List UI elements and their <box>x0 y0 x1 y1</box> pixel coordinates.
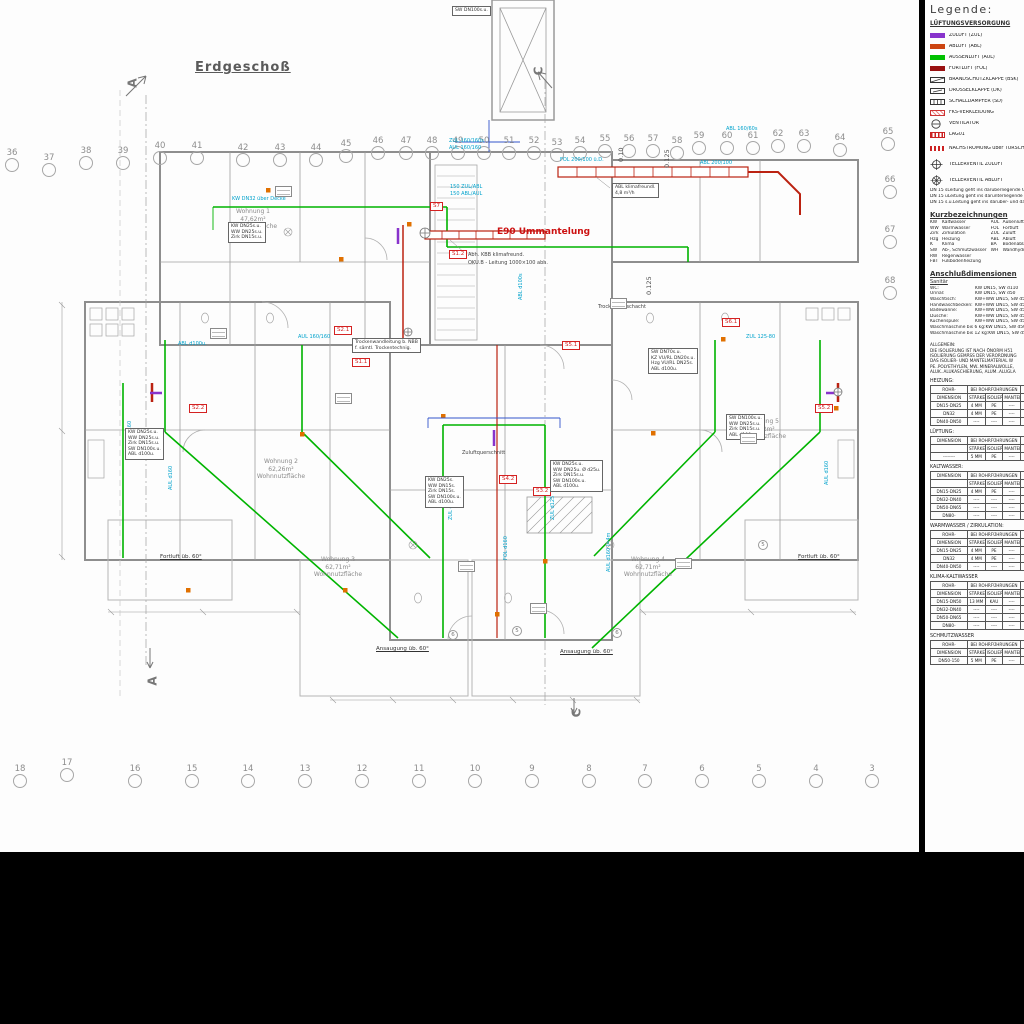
legend-item: DROSSELKLAPPE (DK) <box>930 85 1024 96</box>
table-cell: DN32 <box>931 409 968 417</box>
door-number: 5 <box>512 626 522 636</box>
plan-label: ABL 160/60s <box>726 126 757 132</box>
pipe-spec-box: Trockenwandleitung b. NBBf. sämtl. Trock… <box>352 338 421 353</box>
table-cut-col <box>1021 648 1024 656</box>
grid-number: 60 <box>722 131 733 141</box>
abbrev-code: WH <box>991 248 1003 254</box>
fks-icon <box>930 110 945 116</box>
anschluss-rows: WC:KW DN15, SW d110Urinal:KW DN15, SW d5… <box>930 286 1024 336</box>
table-title: WARMWASSER / ZIRKULATION: <box>930 524 1024 529</box>
shaft-tag: S7 <box>430 202 443 211</box>
table-row: DN50-DN65------------ <box>931 503 1024 511</box>
table-dim-header2 <box>931 479 968 487</box>
grid-number: 56 <box>624 134 635 144</box>
plan-label: 150 ZUL/ABL <box>450 184 482 190</box>
grid-bubble: 11 <box>412 774 426 788</box>
lag-icon <box>930 132 945 138</box>
table-cell: DN15-DN25 <box>931 546 968 554</box>
table-cell: ---- <box>1003 417 1021 425</box>
grid-number: 59 <box>694 131 705 141</box>
table-group-header: BEI ROHRFÜHRUNGEN <box>968 640 1021 648</box>
table-cell: 5 MM <box>968 656 986 664</box>
table-cell: DN32-DN40 <box>931 495 968 503</box>
table-group-header: BEI ROHRFÜHRUNGEN <box>968 385 1021 393</box>
table-sub-header: ISOLIER. <box>985 393 1003 401</box>
table-cut-col <box>1021 385 1024 393</box>
plan-label: Zuluftquerschnitt <box>462 450 505 456</box>
table-cell: ---- <box>1003 511 1021 519</box>
table-sub-header: STÄRKE <box>968 393 986 401</box>
table-cell: PE <box>985 401 1003 409</box>
table-dim-header: DIMENSION <box>931 471 968 479</box>
insulation-table: ROHR-BEI ROHRFÜHRUNGENDIMENSIONSTÄRKEISO… <box>930 581 1024 630</box>
table-sub-header: MANTEL <box>1003 393 1021 401</box>
grid-number: 38 <box>81 146 92 156</box>
table-cell: ---- <box>1003 605 1021 613</box>
legend-item: AUSSENLUFT (AUL) <box>930 52 1024 63</box>
table-sub-header: STÄRKE <box>968 479 986 487</box>
grid-bubble: 4 <box>809 774 823 788</box>
table-cell: ---- <box>1003 621 1021 629</box>
table-row: DN15-DN254 MMPE---- <box>931 401 1024 409</box>
anschluss-dims: KW DN15, SW d50 <box>988 331 1024 337</box>
table-sub-header: STÄRKE <box>968 589 986 597</box>
grid-number: 5 <box>756 764 761 774</box>
table-cell: ---- <box>968 605 986 613</box>
legend-item: LAG01 <box>930 129 1024 140</box>
table-cell: 4 MM <box>968 409 986 417</box>
table-sub-header: MANTEL <box>1003 648 1021 656</box>
table-cut-col <box>1021 530 1024 538</box>
table-cell: ---- <box>968 495 986 503</box>
table-cell: ---- <box>985 621 1003 629</box>
table-cut-cell <box>1021 452 1024 460</box>
table-cell: DN15-DN25 <box>931 401 968 409</box>
grid-bubble: 55 <box>598 144 612 158</box>
table-cell: DN15-DN25 <box>931 487 968 495</box>
table-cell: DN15-DN50 <box>931 597 968 605</box>
grid-number: 43 <box>275 143 286 153</box>
grid-number: 13 <box>300 764 311 774</box>
table-cell: DN80- <box>931 621 968 629</box>
table-row: DN324 MMPE---- <box>931 554 1024 562</box>
grid-number: 12 <box>357 764 368 774</box>
grid-bubble: 41 <box>190 151 204 165</box>
table-title: HEIZUNG: <box>930 379 1024 384</box>
table-dim-header2: DIMENSION <box>931 589 968 597</box>
grid-bubble: 66 <box>883 185 897 199</box>
table-cut-cell <box>1021 597 1024 605</box>
plan-label: ABL 200/100 <box>700 160 732 166</box>
table-cell: ---- <box>1003 409 1021 417</box>
table-title: KALTWASSER: <box>930 465 1024 470</box>
table-cut-cell <box>1021 503 1024 511</box>
dn-note-text: Leitung geht ins darüber- und darunterli… <box>953 200 1024 206</box>
plan-label: ZUL d125 <box>550 496 556 520</box>
table-row: DN40-DN50------------ <box>931 562 1024 570</box>
abbrev-code: FBT <box>930 259 942 265</box>
grid-number: 61 <box>748 131 759 141</box>
grid-bubble: 42 <box>236 153 250 167</box>
grid-number: 6 <box>699 764 704 774</box>
table-row: DN80------------- <box>931 621 1024 629</box>
legend-item-label: ABLUFT (ABL) <box>949 44 982 49</box>
table-cell: DN40-DN50 <box>931 562 968 570</box>
table-cut-cell <box>1021 605 1024 613</box>
grid-bubble: 43 <box>273 153 287 167</box>
plan-label: FOL 200/100 ü.D. <box>560 157 604 163</box>
table-cell: ---- <box>968 511 986 519</box>
table-dim-header: DIMENSION <box>931 436 968 444</box>
table-row: DN15-DN254 MMPE---- <box>931 546 1024 554</box>
abbrev-title: Kurzbezeichnungen <box>930 211 1024 219</box>
duct-color-swatch <box>930 66 945 71</box>
table-cell: DN50-DN65 <box>931 503 968 511</box>
table-cell: ---- <box>1003 487 1021 495</box>
table-cell: KAU <box>985 597 1003 605</box>
table-group-header: BEI ROHRFÜHRUNGEN <box>968 436 1021 444</box>
shaft-tag: S2.1 <box>334 326 352 335</box>
room-tag <box>610 298 627 309</box>
table-group-header: BEI ROHRFÜHRUNGEN <box>968 530 1021 538</box>
table-cell: 4 MM <box>968 554 986 562</box>
table-title: KLIMA-KALTWASSER <box>930 575 1024 580</box>
legend-item-label: TELLERVENTIL ABLUFT <box>949 178 1003 183</box>
grid-number: 55 <box>600 134 611 144</box>
grid-bubble: 3 <box>865 774 879 788</box>
pipe-spec-box: ABL klimafreundl.4,8 m³/h <box>612 183 659 198</box>
room-tag <box>210 328 227 339</box>
legend-item-label: BRANDSCHUTZKLAPPE (BSK) <box>949 77 1018 82</box>
legend-item-label: DROSSELKLAPPE (DK) <box>949 88 1002 93</box>
table-cut-cell <box>1021 613 1024 621</box>
insulation-table: ROHR-BEI ROHRFÜHRUNGENDIMENSIONSTÄRKEISO… <box>930 530 1024 571</box>
allgemein-notes: ALLGEMEIN:DIE ISOLIERUNG IST NACH ÖNORM … <box>930 342 1024 374</box>
room-tag <box>458 561 475 572</box>
table-row: --------5 MMPE---- <box>931 452 1024 460</box>
plan-label: 0.125 <box>646 276 652 295</box>
shaft-tag: S3.2 <box>533 487 551 496</box>
insulation-table: DIMENSIONBEI ROHRFÜHRUNGENSTÄRKEISOLIER.… <box>930 436 1024 461</box>
grid-number: 65 <box>883 127 894 137</box>
table-row: DN50-DN65------------ <box>931 613 1024 621</box>
table-sub-header: MANTEL <box>1003 538 1021 546</box>
table-cut-cell <box>1021 562 1024 570</box>
shaft-tag: S5.1 <box>562 341 580 350</box>
table-cell: ---- <box>985 495 1003 503</box>
plan-label: ABL d100s <box>518 273 524 300</box>
grid-bubble: 10 <box>468 774 482 788</box>
grid-number: 9 <box>529 764 534 774</box>
table-cell: ---- <box>968 621 986 629</box>
legend-vent-title: LÜFTUNGSVERSORGUNG <box>930 21 1024 27</box>
plan-label: E90 Ummantelung <box>497 229 590 235</box>
table-cell: ---- <box>1003 597 1021 605</box>
grid-number: 11 <box>414 764 425 774</box>
grid-bubble: 44 <box>309 153 323 167</box>
legend-valve-items: NACHSTRÖMUNG über TÜRSCHLITZTELLERVENTIL… <box>930 140 1024 188</box>
abbrev-text: Wandhydrant <box>1003 248 1024 254</box>
fan-icon <box>930 119 945 129</box>
legend-item-label: VENTILATOR <box>949 121 979 126</box>
table-cut-col <box>1021 471 1024 479</box>
insulation-table: ROHR-BEI ROHRFÜHRUNGENDIMENSIONSTÄRKEISO… <box>930 640 1024 665</box>
plan-label: Fortluft üb. 60° <box>160 554 202 560</box>
legend-item-label: TELLERVENTIL ZULUFT <box>949 162 1003 167</box>
grid-number: 52 <box>529 136 540 146</box>
grid-bubble: 47 <box>399 146 413 160</box>
grid-bubble: 59 <box>692 141 706 155</box>
table-sub-header: STÄRKE <box>968 444 986 452</box>
door-number: 6 <box>448 630 458 640</box>
table-cell: PE <box>985 656 1003 664</box>
grid-number: 42 <box>238 143 249 153</box>
plan-label: 150 ABL/AUL <box>450 191 482 197</box>
duct-color-swatch <box>930 33 945 38</box>
grid-number: 14 <box>243 764 254 774</box>
table-row: DN32-DN40------------ <box>931 495 1024 503</box>
table-dim-header2 <box>931 444 968 452</box>
legend-item-label: LAG01 <box>949 132 965 137</box>
anschluss-sub: Sanitär <box>930 279 1024 285</box>
allgemein-line: ALUK..ALUKASCHIERUNG, ALUM..ALUGLA <box>930 369 1024 374</box>
table-cut-cell <box>1021 554 1024 562</box>
plan-label: 0.10 <box>618 148 624 162</box>
floor-plan-sheet: Erdgeschoß 36373839404142434445464748495… <box>0 0 919 852</box>
grid-number: 45 <box>341 139 352 149</box>
table-dim-header: ROHR- <box>931 640 968 648</box>
table-group-header: BEI ROHRFÜHRUNGEN <box>968 471 1021 479</box>
table-sub-header: ISOLIER. <box>985 589 1003 597</box>
grid-number: 18 <box>15 764 26 774</box>
grid-number: 66 <box>885 175 896 185</box>
legend-panel: Legende: LÜFTUNGSVERSORGUNG ZULUFT (ZUL)… <box>925 0 1024 852</box>
grid-bubble: 40 <box>153 151 167 165</box>
grid-number: 3 <box>869 764 874 774</box>
table-cell: ---- <box>985 562 1003 570</box>
grid-bubble: 6 <box>695 774 709 788</box>
pipe-spec-box: SW DN100s.u. <box>452 6 491 16</box>
grid-number: 37 <box>44 153 55 163</box>
table-cell: ---- <box>968 417 986 425</box>
table-row: DN50-1505 MMPE---- <box>931 656 1024 664</box>
table-cut-col <box>1021 538 1024 546</box>
grid-bubble: 51 <box>502 146 516 160</box>
legend-item-label: SCHALLDÄMPFER (SD) <box>949 99 1003 104</box>
pipe-spec-box: KW DN25s.u.WW DN25s.u.Zirk DN15s.u. <box>228 222 266 243</box>
shaft-tag: S5.2 <box>815 404 833 413</box>
room-tag <box>675 558 692 569</box>
grid-bubble: 7 <box>638 774 652 788</box>
table-row: DN15-DN5013 MMKAU---- <box>931 597 1024 605</box>
grid-bubble: 39 <box>116 156 130 170</box>
pipe-spec-box: SW DN70s.u.KZ VU/RL DN20s.u.Hzg VU/RL DN… <box>648 348 698 374</box>
grid-bubble: 46 <box>371 146 385 160</box>
legend-item: ZULUFT (ZUL) <box>930 30 1024 41</box>
grid-number: 8 <box>586 764 591 774</box>
legend-item-label: AUSSENLUFT (AUL) <box>949 55 995 60</box>
table-cut-col <box>1021 589 1024 597</box>
grid-bubble: 36 <box>5 158 19 172</box>
grid-number: 47 <box>401 136 412 146</box>
door-number: 5 <box>758 540 768 550</box>
table-cut-cell <box>1021 487 1024 495</box>
plan-label: 0.125 <box>664 149 670 168</box>
plan-label: ZUL 125-80 <box>746 334 775 340</box>
grid-bubble: 5 <box>752 774 766 788</box>
room-tag <box>335 393 352 404</box>
cad-drawing-viewport: Erdgeschoß 36373839404142434445464748495… <box>0 0 1024 1024</box>
table-cell: ---- <box>1003 546 1021 554</box>
table-cut-cell <box>1021 546 1024 554</box>
insulation-tables: HEIZUNG:ROHR-BEI ROHRFÜHRUNGENDIMENSIONS… <box>930 379 1024 665</box>
grid-number: 7 <box>642 764 647 774</box>
abbrev-row: WHWandhydrant <box>991 248 1024 254</box>
table-cell: ---- <box>1003 503 1021 511</box>
pipe-spec-box: KW DN25s.u.WW DN25s.u.Zirk DN15s.u.SW DN… <box>125 428 164 460</box>
dn-note: DN 15 s.u.Leitung geht ins darüber- und … <box>930 200 1024 206</box>
table-sub-header: ISOLIER. <box>985 538 1003 546</box>
table-cell: ---- <box>985 503 1003 511</box>
grid-bubble: 61 <box>746 141 760 155</box>
grid-number: 41 <box>192 141 203 151</box>
grid-number: 64 <box>835 133 846 143</box>
apartment-label: Wohnung 262,26m²Wohnnutzfläche <box>257 458 305 481</box>
grid-number: 68 <box>885 276 896 286</box>
grid-bubble: 9 <box>525 774 539 788</box>
duct-color-swatch <box>930 55 945 60</box>
section-marker-c: C <box>531 67 545 76</box>
table-cell: ---- <box>985 605 1003 613</box>
plan-label: Ansaugung üb. 60° <box>560 649 613 655</box>
grid-number: 46 <box>373 136 384 146</box>
table-dim-header2: DIMENSION <box>931 538 968 546</box>
grid-bubble: 45 <box>339 149 353 163</box>
grid-number: 67 <box>885 225 896 235</box>
grid-number: 36 <box>7 148 18 158</box>
grid-number: 54 <box>575 136 586 146</box>
legend-item-label: FKS-VERKLEIDUNG <box>949 110 994 115</box>
allgemein-line: DAS ISOLIER- UND MANTELMATERIAL W <box>930 358 1024 363</box>
grid-number: 62 <box>773 129 784 139</box>
grid-bubble: 8 <box>582 774 596 788</box>
table-cell: 5 MM <box>968 452 986 460</box>
legend-vent-items: ZULUFT (ZUL)ABLUFT (ABL)AUSSENLUFT (AUL)… <box>930 30 1024 140</box>
table-sub-header: ISOLIER. <box>985 444 1003 452</box>
table-sub-header: MANTEL <box>1003 479 1021 487</box>
grid-bubble: 58 <box>670 146 684 160</box>
table-cell: ---- <box>1003 452 1021 460</box>
table-cell: ---- <box>1003 495 1021 503</box>
abbrev-text: Fußbodenheizung <box>942 259 981 265</box>
table-sub-header: MANTEL <box>1003 444 1021 452</box>
grid-bubble: 17 <box>60 768 74 782</box>
table-row: DN15-DN254 MMPE---- <box>931 487 1024 495</box>
shaft-tag: S6.1 <box>722 318 740 327</box>
table-title: SCHMUTZWASSER <box>930 634 1024 639</box>
legend-item: FORTLUFT (FOL) <box>930 63 1024 74</box>
apartment-label: Wohnung 462,71m²Wohnnutzfläche <box>624 556 672 579</box>
table-cut-col <box>1021 436 1024 444</box>
table-cell: ---- <box>985 511 1003 519</box>
table-cell: ---- <box>985 613 1003 621</box>
grid-number: 16 <box>130 764 141 774</box>
table-cell: PE <box>985 452 1003 460</box>
grid-number: 4 <box>813 764 818 774</box>
table-cut-cell <box>1021 621 1024 629</box>
table-cut-cell <box>1021 495 1024 503</box>
plan-label: Ansaugung üb. 60° <box>376 646 429 652</box>
plan-label: ZUL 160/160s <box>449 138 484 144</box>
table-cell: 4 MM <box>968 401 986 409</box>
table-cell: DN32 <box>931 554 968 562</box>
room-tag <box>530 603 547 614</box>
sd-icon <box>930 99 945 105</box>
legend-item-label: NACHSTRÖMUNG über TÜRSCHLITZ <box>949 146 1024 151</box>
table-dim-header: ROHR- <box>931 385 968 393</box>
dn-note-code: DN 15 s.u. <box>930 200 953 206</box>
grid-number: 17 <box>62 758 73 768</box>
teller-valve-abluft-icon <box>930 175 945 186</box>
table-cut-cell <box>1021 656 1024 664</box>
table-cell: ---- <box>968 562 986 570</box>
table-sub-header: ISOLIER. <box>985 648 1003 656</box>
grid-number: 58 <box>672 136 683 146</box>
table-cell: PE <box>985 409 1003 417</box>
grid-number: 53 <box>552 138 563 148</box>
table-cut-col <box>1021 393 1024 401</box>
insulation-table: ROHR-BEI ROHRFÜHRUNGENDIMENSIONSTÄRKEISO… <box>930 385 1024 426</box>
table-cell: ---- <box>968 503 986 511</box>
apartment-label: Wohnung 362,71m²Wohnnutzfläche <box>314 556 362 579</box>
table-cell: ---- <box>1003 562 1021 570</box>
table-cell: DN40-DN50 <box>931 417 968 425</box>
table-cell: 13 MM <box>968 597 986 605</box>
table-cell: PE <box>985 487 1003 495</box>
plan-label: AUL d160 <box>168 466 174 490</box>
grid-number: 15 <box>187 764 198 774</box>
table-dim-header2: DIMENSION <box>931 393 968 401</box>
shaft-tag: S4.2 <box>499 475 517 484</box>
grid-number: 10 <box>470 764 481 774</box>
grid-bubble: 64 <box>833 143 847 157</box>
grid-bubble: 63 <box>797 139 811 153</box>
grid-bubble: 12 <box>355 774 369 788</box>
legend-item: NACHSTRÖMUNG über TÜRSCHLITZ <box>930 140 1024 156</box>
grid-number: 40 <box>155 141 166 151</box>
duct-color-swatch <box>930 44 945 49</box>
plan-label: AUL d160 l=4m <box>606 533 612 572</box>
table-cut-col <box>1021 581 1024 589</box>
plan-label: AUL 160/160 <box>449 145 481 151</box>
pipe-spec-box: KW DN25s.WW DN15s.Zirk DN15s.SW DN100s.u… <box>425 476 464 508</box>
table-dim-header2: DIMENSION <box>931 648 968 656</box>
table-sub-header: STÄRKE <box>968 538 986 546</box>
door-number: 6 <box>612 628 622 638</box>
table-group-header: BEI ROHRFÜHRUNGEN <box>968 581 1021 589</box>
table-cut-col <box>1021 479 1024 487</box>
grid-bubble: 38 <box>79 156 93 170</box>
grid-bubble: 52 <box>527 146 541 160</box>
table-cell: ---- <box>1003 401 1021 409</box>
grid-number: 51 <box>504 136 515 146</box>
shaft-tag: S1.2 <box>449 250 467 259</box>
table-cell: -------- <box>931 452 968 460</box>
grid-bubble: 37 <box>42 163 56 177</box>
grid-bubble: 65 <box>881 137 895 151</box>
grid-number: 48 <box>427 136 438 146</box>
teller-valve-zuluft-icon <box>930 159 945 170</box>
